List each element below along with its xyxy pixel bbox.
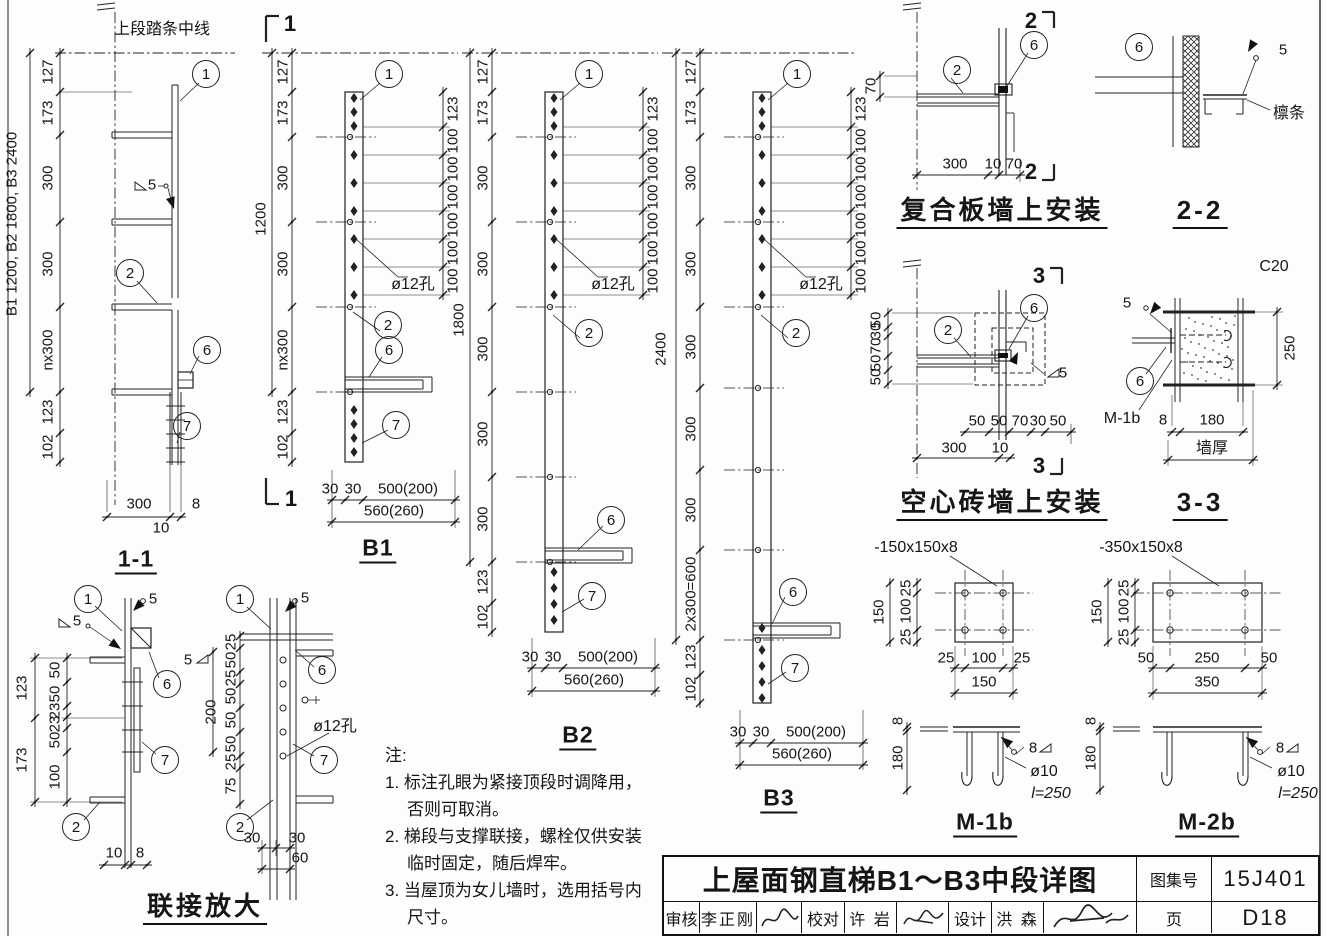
dim-label: 500(200): [378, 482, 438, 497]
dim-label: 100: [854, 184, 869, 209]
dim-label: 50: [224, 736, 239, 753]
drawing-sheet: 上段踏条中线B1 1200, B2 1800, B3 2400127173300…: [0, 0, 1327, 936]
dim-label: 300: [476, 165, 491, 190]
dim-label: 25: [938, 651, 955, 666]
dim-label: 30: [522, 650, 539, 665]
note-item-1: 1. 标注孔眼为紧接顶段时调降用，: [385, 769, 695, 796]
dim-label: 100: [446, 156, 461, 181]
design-signature: [1044, 902, 1137, 933]
dim-label: 180: [1084, 745, 1099, 770]
dim-label: 100: [646, 184, 661, 209]
proof-signature: [897, 902, 949, 933]
dim-label: 70: [1006, 157, 1023, 172]
dim-label: 300: [476, 251, 491, 276]
dim-label: 10: [985, 157, 1002, 172]
note-item-2-cont: 临时固定，随后焊牢。: [385, 850, 695, 877]
dim-label: 墙厚: [1196, 441, 1228, 457]
dim-label: 123: [41, 399, 56, 424]
dim-label: 300: [684, 251, 699, 276]
section-mark-1: 1: [285, 488, 297, 510]
dim-label: 102: [684, 676, 699, 701]
dim-label: 30: [244, 831, 261, 846]
title-section-1-1: 1-1: [115, 548, 157, 575]
dim-label: 100: [446, 240, 461, 265]
dim-label: 50: [48, 662, 63, 679]
callout-2: 2: [116, 259, 144, 287]
atlas-number: 15J401: [1212, 857, 1319, 902]
dim-label: 500(200): [578, 650, 638, 665]
dim-label: 560(260): [364, 504, 424, 519]
dim-label: 300: [126, 497, 151, 512]
dim-label: 50: [224, 688, 239, 705]
dim-label: 300: [684, 334, 699, 359]
dim-label: 5: [149, 592, 157, 607]
dim-label: 100: [1117, 598, 1132, 623]
section-mark-1: 1: [284, 13, 296, 35]
dim-label: 200: [204, 699, 219, 724]
dim-label: 173: [276, 100, 291, 125]
title-m1b: M-1b: [953, 811, 1017, 838]
title-block: 上屋面钢直梯B1～B3中段详图 图集号 15J401 审核 李正刚 校对 许 岩…: [662, 855, 1320, 936]
heading-lianjie-fangda: 联接放大: [143, 893, 267, 925]
section-mark-3: 3: [1033, 265, 1045, 287]
dim-label: 150: [971, 675, 996, 690]
dim-label: 300: [476, 421, 491, 446]
dim-label: 25: [1117, 629, 1132, 646]
dim-label: 23: [48, 716, 63, 733]
title-m2b: M-2b: [1175, 811, 1239, 838]
dim-label: 100: [646, 240, 661, 265]
dim-label: 300: [684, 416, 699, 441]
dim-label: 25: [224, 634, 239, 651]
dim-label: 100: [646, 128, 661, 153]
design-label: 设计: [949, 902, 992, 933]
dim-label: 100: [971, 651, 996, 666]
dim-label: 127: [476, 59, 491, 84]
design-name: 洪 森: [992, 902, 1044, 933]
audit-name: 李正刚: [700, 902, 757, 933]
dim-label: 127: [41, 59, 56, 84]
dim-label: 10: [106, 846, 123, 861]
dim-label: 100: [446, 212, 461, 237]
dim-label: 1200: [254, 202, 269, 235]
dim-label: 123: [854, 96, 869, 121]
dim-label: 8: [891, 717, 906, 725]
heading-fuheban: 复合板墙上安装: [896, 197, 1107, 229]
dim-label: 100: [446, 184, 461, 209]
dim-label: 60: [292, 851, 309, 866]
callout-1: 1: [783, 60, 811, 88]
dim-label: 10: [153, 521, 170, 536]
dim-label: 50: [1138, 651, 1155, 666]
dim-label: 30: [545, 650, 562, 665]
notes-items: 1. 标注孔眼为紧接顶段时调降用，否则可取消。2. 梯段与支撑联接，螺栓仅供安装…: [385, 769, 695, 931]
dim-label: nx300: [276, 330, 291, 371]
callout-6: 6: [779, 578, 807, 606]
dim-label: nx300: [41, 330, 56, 371]
dim-label: 5: [1279, 43, 1287, 58]
dim-label: 30: [730, 725, 747, 740]
callout-7: 7: [382, 411, 410, 439]
dim-label: 70: [864, 78, 879, 95]
dim-label: 8: [1029, 741, 1037, 756]
dim-label: 25: [899, 580, 914, 597]
dim-label: 300: [942, 157, 967, 172]
audit-label: 审核: [664, 902, 700, 933]
dim-label: 123: [276, 399, 291, 424]
note-item-2: 2. 梯段与支撑联接，螺栓仅供安装: [385, 823, 695, 850]
dim-label: 123: [476, 569, 491, 594]
callout-7: 7: [151, 746, 179, 774]
callout-6: 6: [1125, 33, 1153, 61]
callout-2: 2: [62, 813, 90, 841]
dim-label: 50: [224, 712, 239, 729]
dim-label: 100: [854, 212, 869, 237]
callout-7: 7: [310, 746, 338, 774]
notes: 注: 1. 标注孔眼为紧接顶段时调降用，否则可取消。2. 梯段与支撑联接，螺栓仅…: [385, 742, 695, 931]
callout-2: 2: [782, 319, 810, 347]
dim-label: B1 1200, B2 1800, B3 2400: [5, 132, 20, 316]
dim-label: 5: [184, 653, 192, 668]
sheet-title: 上屋面钢直梯B1～B3中段详图: [664, 857, 1137, 902]
dim-label: 檩条: [1273, 106, 1305, 122]
dim-label: 100: [646, 156, 661, 181]
signature-icon: [1046, 903, 1134, 933]
callout-1: 1: [575, 60, 603, 88]
dim-label: 300: [476, 506, 491, 531]
callout-7: 7: [173, 412, 201, 440]
dim-label: 100: [899, 598, 914, 623]
dim-label: 300: [41, 165, 56, 190]
dim-label: 30: [753, 725, 770, 740]
dim-label: 8: [1159, 413, 1167, 428]
dim-label: 100: [854, 128, 869, 153]
dim-label: 150: [872, 599, 887, 624]
dim-label: 1800: [452, 303, 467, 336]
dim-label: ø12孔: [799, 277, 843, 293]
dim-label: 50: [224, 652, 239, 669]
callout-1: 1: [375, 60, 403, 88]
dim-label: 100: [646, 212, 661, 237]
callout-6: 6: [375, 336, 403, 364]
dim-label: 123: [684, 644, 699, 669]
dim-label: 180: [1199, 413, 1224, 428]
dim-label: 25: [1014, 651, 1031, 666]
dim-label: 127: [276, 59, 291, 84]
dim-label: 25: [224, 670, 239, 687]
callout-7: 7: [781, 654, 809, 682]
dim-label: 50: [48, 686, 63, 703]
dim-label: 123: [15, 675, 30, 700]
dim-label: 8: [1084, 717, 1099, 725]
callout-6: 6: [153, 670, 181, 698]
dim-label: 8: [136, 846, 144, 861]
dim-label: 127: [684, 59, 699, 84]
dim-label: ø12孔: [391, 277, 435, 293]
dim-label: 100: [446, 128, 461, 153]
dim-label: 100: [446, 268, 461, 293]
dim-label: 150: [1090, 599, 1105, 624]
dim-label: 300: [276, 165, 291, 190]
dim-label: 75: [224, 778, 239, 795]
callout-7: 7: [578, 582, 606, 610]
dim-label: 5: [1123, 296, 1131, 311]
dim-label: 50: [869, 369, 884, 386]
dim-label: 102: [276, 434, 291, 459]
dim-label: 123: [446, 96, 461, 121]
page-number: D18: [1212, 902, 1319, 933]
dim-label: 100: [854, 240, 869, 265]
section-mark-3: 3: [1033, 455, 1045, 477]
dim-label: 300: [684, 165, 699, 190]
note-item-1-cont: 否则可取消。: [385, 796, 695, 823]
callout-6: 6: [193, 336, 221, 364]
dim-label: 25: [1117, 580, 1132, 597]
dim-label: 30: [322, 482, 339, 497]
dim-label: 50: [1261, 651, 1278, 666]
dim-label: 123: [646, 96, 661, 121]
callout-1: 1: [192, 60, 220, 88]
callout-6: 6: [308, 656, 336, 684]
notes-heading: 注:: [385, 742, 695, 769]
dim-label: 300: [41, 251, 56, 276]
callout-2: 2: [934, 316, 962, 344]
dim-label: M-1b: [1104, 411, 1140, 427]
callout-6: 6: [1020, 294, 1048, 322]
dim-label: 25: [899, 629, 914, 646]
dim-label: 70: [869, 338, 884, 355]
callout-6: 6: [597, 506, 625, 534]
proof-label: 校对: [802, 902, 845, 933]
note-item-3-cont: 尺寸。: [385, 904, 695, 931]
note-item-3: 3. 当屋顶为女儿墙时，选用括号内: [385, 877, 695, 904]
dim-label: 500(200): [786, 725, 846, 740]
dim-label: 560(260): [772, 747, 832, 762]
dim-label: 2400: [654, 332, 669, 365]
dim-label: 5: [1059, 366, 1067, 381]
page-label: 页: [1137, 902, 1212, 933]
dim-label: 173: [15, 747, 30, 772]
dim-label: 100: [48, 764, 63, 789]
heading-kongxin: 空心砖墙上安装: [896, 489, 1107, 521]
dim-label: 5: [148, 178, 156, 193]
dim-label: 8: [1276, 741, 1284, 756]
dim-label: 30: [345, 482, 362, 497]
signature-icon: [758, 904, 800, 932]
dim-label: 25: [224, 754, 239, 771]
dim-label: 30: [1030, 414, 1047, 429]
dim-label: 50: [48, 732, 63, 749]
dim-label: 10: [992, 441, 1009, 456]
dim-label: -150x150x8: [874, 540, 958, 556]
dim-label: 250: [1194, 651, 1219, 666]
title-b3: B3: [760, 787, 797, 814]
dim-label: 5: [301, 591, 309, 606]
heading-3-3: 3-3: [1173, 489, 1228, 521]
signature-icon: [899, 904, 947, 932]
dim-label: 300: [276, 251, 291, 276]
title-b1: B1: [359, 537, 396, 564]
atlas-number-label: 图集号: [1137, 857, 1212, 902]
dim-label: 173: [476, 100, 491, 125]
dim-label: 30: [289, 831, 306, 846]
dim-label: 50: [1050, 414, 1067, 429]
dim-label: 100: [854, 268, 869, 293]
dim-label: 250: [1283, 335, 1298, 360]
callout-6: 6: [1126, 367, 1154, 395]
dim-label: ø10: [1030, 764, 1058, 780]
audit-signature: [757, 902, 802, 933]
dim-label: ø10: [1277, 764, 1305, 780]
callout-2: 2: [374, 311, 402, 339]
dim-label: l=250: [1278, 786, 1318, 802]
dim-label: 50: [969, 414, 986, 429]
dim-label: 2x300=600: [684, 557, 699, 632]
dim-label: C20: [1259, 259, 1288, 275]
dim-label: 173: [41, 100, 56, 125]
dim-label: 173: [684, 100, 699, 125]
dim-label: 100: [854, 156, 869, 181]
dim-label: 300: [941, 441, 966, 456]
section-mark-2: 2: [1025, 10, 1037, 32]
dim-label: 350: [1194, 675, 1219, 690]
callout-2: 2: [943, 56, 971, 84]
proof-name: 许 岩: [845, 902, 897, 933]
dim-label: l=250: [1031, 786, 1071, 802]
dim-label: ø12孔: [591, 277, 635, 293]
dim-label: 100: [646, 268, 661, 293]
dim-label: -350x150x8: [1099, 540, 1183, 556]
callout-1: 1: [226, 585, 254, 613]
callout-6: 6: [1020, 31, 1048, 59]
dim-label: 50: [991, 414, 1008, 429]
dim-label: 上段踏条中线: [114, 22, 210, 38]
dim-label: ø12孔: [313, 719, 357, 735]
callout-1: 1: [74, 585, 102, 613]
callout-2: 2: [575, 319, 603, 347]
dim-label: 102: [476, 604, 491, 629]
dim-label: 180: [891, 745, 906, 770]
dim-label: 5: [73, 614, 81, 629]
dim-label: 70: [1012, 414, 1029, 429]
dim-label: 300: [476, 336, 491, 361]
section-mark-2: 2: [1025, 161, 1037, 183]
dim-label: 8: [192, 497, 200, 512]
dim-label: 102: [41, 434, 56, 459]
dim-label: 300: [684, 497, 699, 522]
dim-label: 560(260): [564, 673, 624, 688]
heading-2-2: 2-2: [1173, 197, 1228, 229]
